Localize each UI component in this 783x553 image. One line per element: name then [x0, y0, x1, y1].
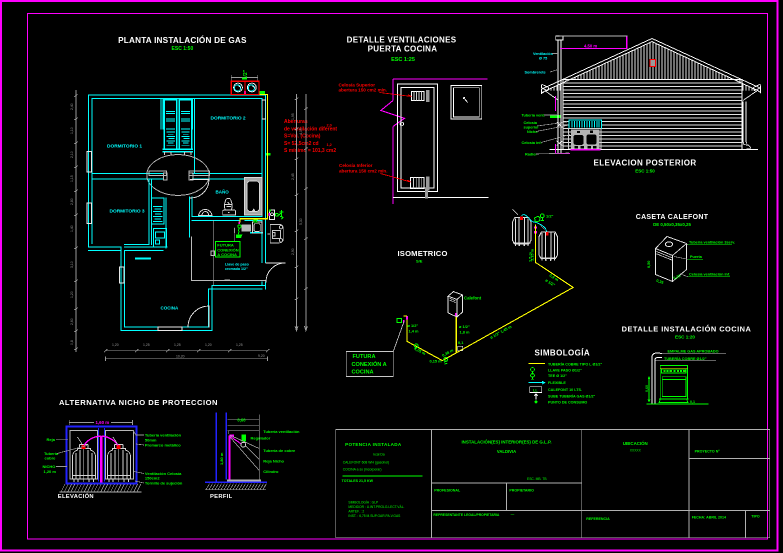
svg-text:Reja Nicho: Reja Nicho	[263, 458, 284, 463]
svg-text:1,95: 1,95	[291, 113, 295, 120]
svg-text:Puerta: Puerta	[690, 255, 703, 259]
svg-text:PROYECTO N°: PROYECTO N°	[695, 449, 721, 453]
svg-text:Tubería de cobre: Tubería de cobre	[263, 448, 296, 453]
svg-text:ESC. MB. TB: ESC. MB. TB	[527, 477, 547, 481]
svg-text:ARTEF. : 2: ARTEF. : 2	[348, 509, 364, 513]
svg-text:1,5 m: 1,5 m	[528, 252, 533, 262]
svg-text:CASETA CALEFONT: CASETA CALEFONT	[636, 214, 709, 221]
svg-text:2,90: 2,90	[291, 248, 295, 255]
svg-text:Tornillo de sujeción: Tornillo de sujeción	[145, 480, 183, 485]
svg-text:0,15 m: 0,15 m	[430, 359, 443, 364]
svg-text:UBICACIÓN: UBICACIÓN	[623, 441, 648, 446]
svg-text:FUTURA: FUTURA	[353, 354, 376, 360]
svg-text:abertura 150 cm2 mín.: abertura 150 cm2 mín.	[339, 88, 388, 93]
svg-text:Regulador: Regulador	[251, 435, 271, 440]
svg-text:Tubería ventilación: Tubería ventilación	[263, 429, 300, 434]
svg-text:COCINA: COCINA	[161, 306, 179, 311]
svg-text:DORMITORIO 3: DORMITORIO 3	[110, 208, 145, 214]
svg-text:XXXXX: XXXXX	[630, 448, 642, 452]
svg-text:Aberturas: Aberturas	[284, 119, 308, 125]
svg-text:4,05: 4,05	[299, 128, 303, 135]
svg-text:1,20: 1,20	[70, 291, 74, 298]
svg-text:Celosía inf.: Celosía inf.	[522, 141, 542, 145]
svg-text:CALEFONT 10 LTS.: CALEFONT 10 LTS.	[548, 388, 582, 392]
svg-text:LLAVE PASO Ø1/2": LLAVE PASO Ø1/2"	[548, 368, 582, 372]
svg-text:Tubería ventilación 3serv.: Tubería ventilación 3serv.	[689, 240, 735, 244]
svg-text:Celosía Inferior: Celosía Inferior	[339, 163, 373, 168]
svg-text:EMPALME GAS APROBADO: EMPALME GAS APROBADO	[668, 350, 719, 354]
svg-text:ELEVACION POSTERIOR: ELEVACION POSTERIOR	[593, 159, 696, 168]
svg-text:2,60: 2,60	[70, 318, 74, 325]
svg-text:0,1: 0,1	[458, 340, 464, 345]
svg-text:2,45: 2,45	[291, 173, 295, 180]
svg-text:Reja: Reja	[47, 437, 56, 442]
svg-text:DORMITORIO 1: DORMITORIO 1	[107, 143, 142, 149]
svg-text:10,20: 10,20	[176, 355, 185, 359]
svg-text:Cilindro: Cilindro	[263, 469, 279, 474]
svg-text:DETALLE INSTALACIÓN COCINA: DETALLE INSTALACIÓN COCINA	[622, 324, 752, 333]
svg-text:1,40: 1,40	[70, 225, 74, 232]
svg-text:Premarco metálico: Premarco metálico	[145, 442, 181, 447]
svg-text:FLEXIBLE: FLEXIBLE	[548, 381, 566, 385]
svg-text:0,60: 0,60	[645, 385, 649, 392]
svg-text:SIMBOLOGÍA: SIMBOLOGÍA	[535, 349, 591, 358]
svg-text:1,25: 1,25	[236, 343, 243, 347]
svg-text:PLANTA INSTALACIÓN DE GAS: PLANTA INSTALACIÓN DE GAS	[118, 34, 247, 45]
svg-text:A COCINA: A COCINA	[217, 252, 237, 257]
svg-text:9,20: 9,20	[258, 354, 265, 358]
svg-text:ELEVACIÓN: ELEVACIÓN	[58, 492, 94, 500]
svg-text:MEDIDOR : U.INT.PROLG.LECT.VÁL: MEDIDOR : U.INT.PROLG.LECT.VÁL.	[348, 505, 404, 509]
svg-text:REFERENCIA: REFERENCIA	[586, 517, 610, 521]
svg-text:BAÑO: BAÑO	[216, 189, 230, 195]
svg-text:1,25: 1,25	[174, 343, 181, 347]
svg-text:LL: LL	[533, 388, 538, 392]
svg-text:1,2: 1,2	[327, 143, 332, 147]
svg-text:1,20 m: 1,20 m	[44, 469, 57, 474]
svg-text:1,20: 1,20	[205, 343, 212, 347]
svg-text:0,50: 0,50	[647, 261, 651, 268]
svg-text:S mínimo = 101,3 cm2: S mínimo = 101,3 cm2	[284, 148, 336, 154]
svg-text:PUERTA COCINA: PUERTA COCINA	[368, 45, 438, 54]
svg-text:FECHA: ABRIL 2014: FECHA: ABRIL 2014	[692, 515, 726, 519]
svg-text:1,4 m: 1,4 m	[409, 328, 419, 333]
svg-text:TUBERÍA COBRE Ø1/2": TUBERÍA COBRE Ø1/2"	[664, 356, 707, 361]
svg-text:ESC 1:25: ESC 1:25	[391, 57, 415, 63]
svg-text:INSTALACIÓN(ES) INTERIOR(ES) D: INSTALACIÓN(ES) INTERIOR(ES) DE G.L.P.	[461, 440, 551, 445]
svg-text:SUBE TUBERÍA GAS Ø1/2": SUBE TUBERÍA GAS Ø1/2"	[548, 393, 596, 398]
svg-text:Nicho: Nicho	[527, 130, 538, 134]
svg-text:TIPO: TIPO	[751, 514, 760, 518]
svg-text:PERFIL: PERFIL	[210, 494, 233, 500]
svg-text:—: —	[511, 513, 515, 517]
svg-text:1,20: 1,20	[112, 343, 119, 347]
svg-text:Radier: Radier	[525, 153, 537, 157]
svg-text:VALDIVIA: VALDIVIA	[497, 449, 516, 454]
svg-text:REPRESENTANTE LEGAL/PROPIETARI: REPRESENTANTE LEGAL/PROPIETARIA	[433, 513, 500, 517]
svg-text:2,40: 2,40	[70, 103, 74, 110]
svg-text:DORMITORIO 2: DORMITORIO 2	[211, 116, 246, 122]
svg-text:0,60: 0,60	[237, 418, 246, 423]
svg-text:POTENCIA INSTALADA: POTENCIA INSTALADA	[345, 442, 402, 447]
svg-text:5,30: 5,30	[299, 218, 303, 225]
svg-text:ISOMETRICO: ISOMETRICO	[398, 249, 448, 258]
svg-text:ø 1/2": ø 1/2"	[408, 323, 419, 328]
svg-text:TUBERÍA COBRE TIPO L Ø1/2": TUBERÍA COBRE TIPO L Ø1/2"	[548, 361, 602, 366]
svg-text:1,60 m: 1,60 m	[96, 420, 110, 425]
svg-text:INST. : 6,75 M.SUP.GAR.PA.V.GA: INST. : 6,75 M.SUP.GAR.PA.V.GAS	[348, 514, 401, 518]
svg-text:superior: superior	[524, 125, 540, 129]
svg-text:2,80: 2,80	[70, 198, 74, 205]
svg-text:TEE Ø 1/2": TEE Ø 1/2"	[548, 374, 567, 378]
svg-text:TOTALES 21,5 KW: TOTALES 21,5 KW	[342, 479, 374, 483]
svg-text:0,1: 0,1	[690, 400, 695, 404]
svg-text:kcal Da: kcal Da	[373, 452, 384, 456]
svg-text:Celosía ventilación inf.: Celosía ventilación inf.	[689, 273, 730, 277]
svg-text:S/E: S/E	[416, 259, 423, 264]
svg-text:ESC 1:50: ESC 1:50	[635, 169, 655, 174]
svg-text:PUNTO DE CONSUMO: PUNTO DE CONSUMO	[548, 401, 587, 405]
svg-text:1,10: 1,10	[70, 127, 74, 134]
svg-text:Tubería vent.: Tubería vent.	[522, 114, 545, 118]
svg-text:1,80 m: 1,80 m	[219, 452, 224, 465]
svg-text:SIMBOLOGÍA : GLP: SIMBOLOGÍA : GLP	[348, 500, 379, 504]
svg-text:Celosía Superior: Celosía Superior	[339, 82, 376, 87]
svg-text:ALTERNATIVA NICHO DE PROTECCIO: ALTERNATIVA NICHO DE PROTECCION	[59, 398, 218, 407]
svg-text:ø 1/2": ø 1/2"	[459, 324, 470, 329]
svg-text:PROPIETARIO: PROPIETARIO	[509, 489, 534, 493]
svg-text:1,25: 1,25	[143, 343, 150, 347]
svg-text:CALEFONT 608 WH (gasohol: CALEFONT 608 WH (gasohol)	[343, 461, 389, 465]
svg-text:COCINA: COCINA	[352, 369, 374, 375]
svg-text:CONEXIÓN A: CONEXIÓN A	[352, 360, 387, 368]
svg-text:0,8: 0,8	[70, 340, 74, 345]
svg-text:DE 0,50x0,35x0,25: DE 0,50x0,35x0,25	[653, 222, 691, 227]
svg-text:abertura 150 cm2 mín.: abertura 150 cm2 mín.	[339, 168, 388, 173]
svg-text:1/2": 1/2"	[546, 214, 554, 219]
svg-text:cobre: cobre	[45, 456, 57, 461]
svg-text:S= 52,5cm2 cd: S= 52,5cm2 cd	[284, 141, 319, 147]
svg-text:ESC 1:50: ESC 1:50	[172, 46, 194, 52]
svg-text:cromada 1/2": cromada 1/2"	[225, 267, 248, 271]
svg-text:COCINA a so (in: COCINA a so (incorporar)	[343, 468, 382, 472]
svg-text:Sombrerete: Sombrerete	[525, 71, 546, 75]
svg-text:DETALLE VENTILACIONES: DETALLE VENTILACIONES	[347, 36, 457, 45]
svg-text:PROFESIONAL: PROFESIONAL	[434, 489, 461, 493]
svg-text:2,10: 2,10	[70, 151, 74, 158]
svg-text:Calefont: Calefont	[464, 296, 482, 301]
svg-text:3,10: 3,10	[70, 261, 74, 268]
svg-text:Ø 75: Ø 75	[539, 56, 547, 60]
svg-text:1,8 m: 1,8 m	[460, 329, 470, 334]
svg-text:2,0: 2,0	[327, 124, 332, 128]
svg-text:ESC 1:20: ESC 1:20	[675, 334, 695, 339]
svg-text:1,15: 1,15	[70, 175, 74, 182]
svg-text:4,50 m: 4,50 m	[584, 43, 597, 48]
